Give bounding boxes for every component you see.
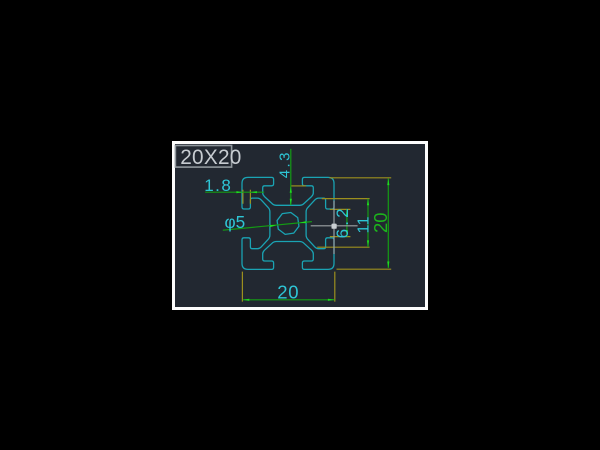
svg-text:φ5: φ5 [225, 212, 246, 232]
svg-text:20X20: 20X20 [180, 146, 241, 169]
svg-text:4.3: 4.3 [276, 150, 293, 178]
svg-text:1.8: 1.8 [204, 176, 232, 195]
svg-text:20: 20 [277, 281, 299, 302]
svg-text:6.2: 6.2 [333, 205, 352, 238]
svg-text:20: 20 [370, 212, 391, 233]
